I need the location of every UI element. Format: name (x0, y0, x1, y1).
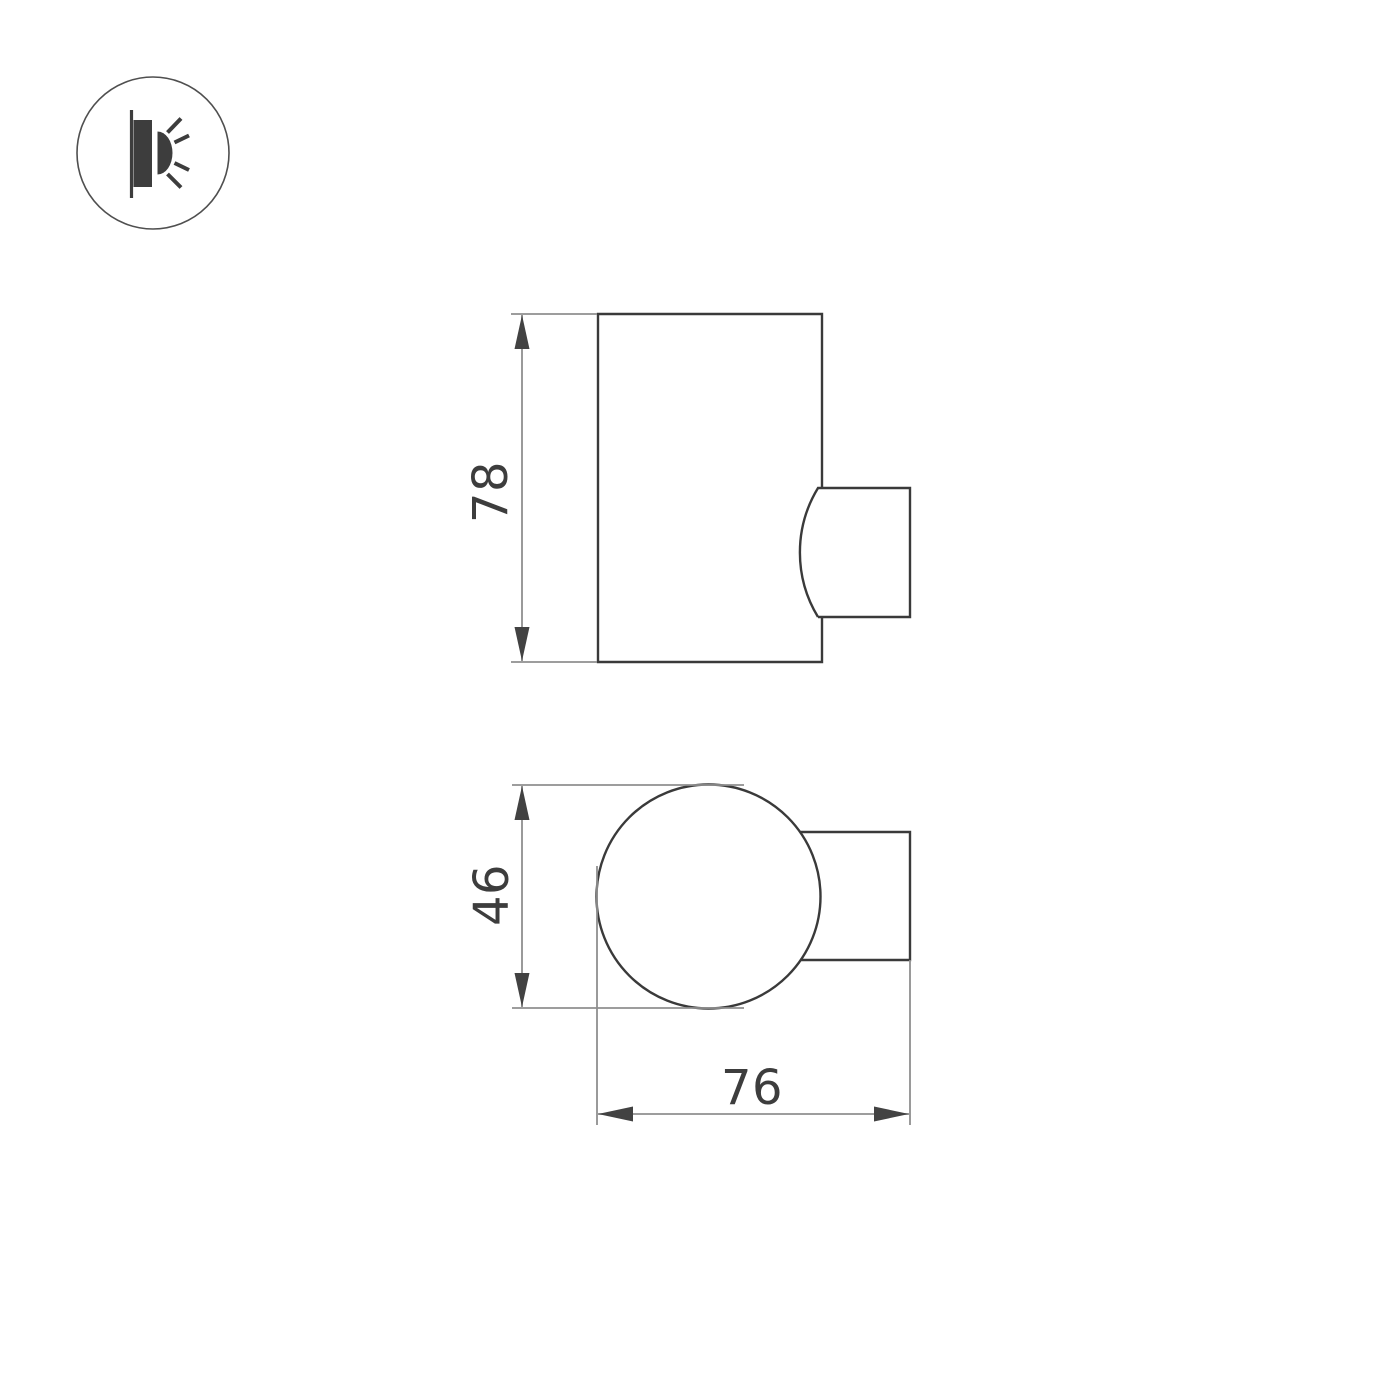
badge-circle (77, 77, 229, 229)
height-dimension-label: 78 (463, 461, 519, 523)
lamp-body (134, 120, 153, 187)
dimension-drawing: 78 46 (0, 0, 1400, 1400)
drawing-background (0, 0, 1400, 1400)
drawing-canvas: 78 46 (0, 0, 1400, 1400)
product-type-badge (77, 77, 229, 229)
width-dimension-label: 76 (721, 1060, 783, 1116)
diameter-dimension-label: 46 (464, 864, 520, 926)
